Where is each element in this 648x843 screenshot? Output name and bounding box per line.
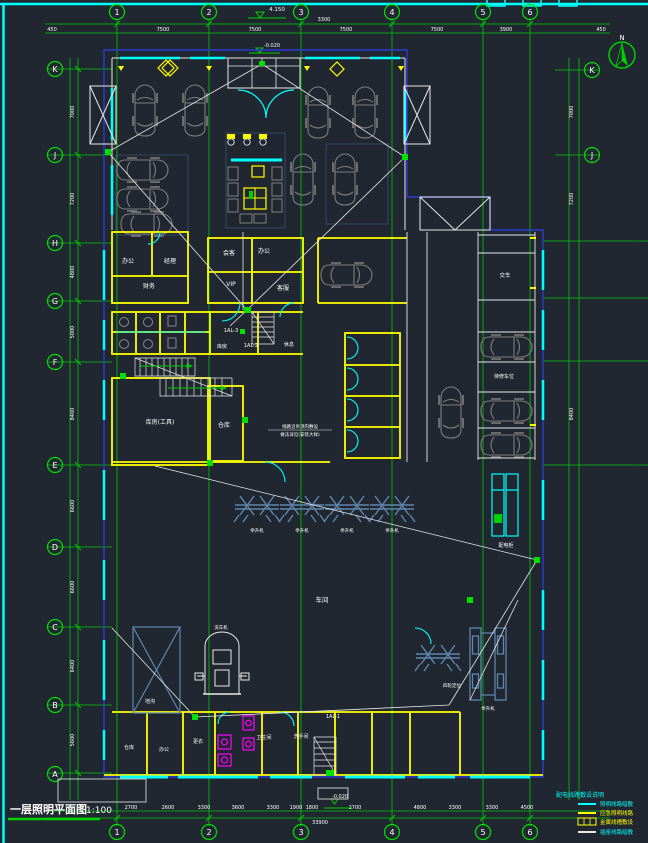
svg-text:7500: 7500 [249,27,262,33]
svg-text:4.150: 4.150 [269,7,285,13]
svg-text:4: 4 [389,828,394,837]
svg-text:1800: 1800 [306,805,319,811]
power-cabinets [492,474,518,536]
svg-text:经理: 经理 [164,257,176,265]
legend-title: 配电线路敷设说明 [556,791,604,799]
svg-text:1AL-3: 1AL-3 [224,328,238,334]
svg-text:1AL-1: 1AL-1 [326,714,340,720]
svg-text:地沟: 地沟 [145,698,155,705]
svg-text:6600: 6600 [70,500,76,513]
svg-text:5: 5 [480,828,485,837]
car-icon [183,85,207,136]
svg-text:A: A [52,770,58,779]
car-icon [117,158,168,182]
svg-text:5000: 5000 [70,326,76,339]
svg-text:1: 1 [114,8,119,17]
car-icon [481,433,532,457]
svg-text:交车: 交车 [499,271,511,279]
floor-plan-drawing: 1 2 3 4 5 6 1 2 3 4 5 6 K J H G F E D C … [0,0,648,843]
svg-text:做法详见(安装大样): 做法详见(安装大样) [280,431,320,438]
svg-text:库房(工具): 库房(工具) [146,418,175,426]
svg-text:K: K [52,65,58,74]
svg-text:8400: 8400 [569,408,575,421]
reception-desk [228,58,300,118]
toilet-fixtures-left [116,316,206,349]
svg-text:四轮定位: 四轮定位 [443,682,461,689]
svg-text:B: B [52,701,58,710]
svg-text:2700: 2700 [125,805,138,811]
svg-text:E: E [52,461,57,470]
svg-text:7000: 7000 [70,106,76,119]
svg-text:插座线路暗敷: 插座线路暗敷 [600,828,634,836]
svg-text:4800: 4800 [70,266,76,279]
swing-doors [148,232,431,726]
svg-text:2600: 2600 [162,805,175,811]
svg-text:金属线槽敷设: 金属线槽敷设 [600,818,634,826]
svg-text:33900: 33900 [312,820,328,826]
svg-text:6: 6 [527,8,532,17]
svg-text:-0.020: -0.020 [264,43,280,49]
north-label: N [619,34,624,42]
svg-text:卫生间: 卫生间 [256,734,271,741]
interior-walls [112,232,460,775]
car-icon [321,263,372,287]
level-marks: 4.150 -0.020 -0.020 [248,7,352,808]
svg-text:库房: 库房 [217,343,227,350]
svg-text:3300: 3300 [318,17,331,23]
workshop-equipment [133,474,518,713]
svg-text:客服: 客服 [277,284,289,292]
room-labels: 办公 经理 财务 会客 办公 VIP 客服 库房 休息 库房(工具) 仓库 交车… [122,247,514,753]
svg-text:7000: 7000 [569,106,575,119]
drawing-title: 一层照明平面图 [10,803,87,816]
svg-text:办公: 办公 [122,257,134,265]
svg-text:H: H [52,239,58,248]
svg-text:3300: 3300 [449,805,462,811]
svg-text:VIP: VIP [226,281,236,288]
svg-text:7500: 7500 [431,27,444,33]
cars [117,85,532,457]
svg-text:K: K [589,66,595,75]
svg-text:J: J [53,151,56,160]
svg-text:C: C [52,623,58,632]
svg-text:会客: 会客 [223,249,235,257]
svg-text:D: D [52,543,58,552]
svg-text:3: 3 [298,8,303,17]
svg-text:3300: 3300 [198,805,211,811]
svg-text:3: 3 [298,828,303,837]
svg-text:洗手间: 洗手间 [293,733,308,740]
svg-text:5: 5 [480,8,485,17]
svg-text:待修车位: 待修车位 [494,373,514,380]
wheel-alignment-lift-icon [415,645,461,671]
svg-text:7200: 7200 [569,193,575,206]
svg-text:7200: 7200 [70,193,76,206]
svg-text:线路沿吊顶内敷设: 线路沿吊顶内敷设 [282,423,318,430]
svg-text:车间: 车间 [316,595,329,604]
lounge-furniture [116,133,388,235]
legend: 配电线路敷设说明 照明线路暗敷 应急照明线路 金属线槽敷设 插座线路暗敷 [556,791,634,836]
svg-text:应急照明线路: 应急照明线路 [600,809,634,817]
svg-text:洗车机: 洗车机 [214,624,228,631]
svg-text:休息: 休息 [284,341,294,348]
svg-text:财务: 财务 [143,282,155,290]
north-arrow: N [609,34,635,68]
svg-text:450: 450 [47,27,57,33]
car-icon [439,387,463,438]
svg-text:3600: 3600 [232,805,245,811]
inspection-pit [133,627,180,713]
svg-text:2: 2 [206,8,211,17]
svg-text:仓库: 仓库 [124,744,134,751]
svg-text:4500: 4500 [521,805,534,811]
svg-text:3300: 3300 [486,805,499,811]
title-block: 一层照明平面图 1:100 [8,803,112,819]
svg-text:办公: 办公 [258,247,270,255]
svg-text:6400: 6400 [70,660,76,673]
svg-text:8400: 8400 [70,408,76,421]
svg-text:办公: 办公 [159,746,169,753]
scissor-lift-icon [234,496,280,522]
car-icon [481,399,532,423]
grid-lines [45,19,648,826]
svg-text:6: 6 [527,828,532,837]
svg-text:照明线路暗敷: 照明线路暗敷 [600,800,634,808]
svg-text:4800: 4800 [414,805,427,811]
svg-text:1AL-2: 1AL-2 [244,343,258,349]
svg-text:1900: 1900 [290,805,303,811]
car-icon [291,154,315,205]
svg-text:1: 1 [114,828,119,837]
svg-text:更衣: 更衣 [193,738,203,745]
svg-text:举升机: 举升机 [250,527,264,534]
svg-text:450: 450 [596,27,606,33]
cad-sheet: 1 2 3 4 5 6 1 2 3 4 5 6 K J H G F E D C … [0,0,648,843]
car-icon [133,85,157,136]
svg-text:F: F [53,358,58,367]
svg-text:配电柜: 配电柜 [498,542,513,549]
svg-text:5600: 5600 [70,734,76,747]
svg-text:3300: 3300 [267,805,280,811]
svg-text:举升机: 举升机 [295,527,309,534]
svg-text:6600: 6600 [70,581,76,594]
svg-text:2: 2 [206,828,211,837]
svg-text:G: G [52,297,58,306]
stairs [135,312,336,775]
svg-text:举升机: 举升机 [385,527,399,534]
svg-text:仓库: 仓库 [218,421,230,429]
wiring-lines [108,58,537,717]
drawing-scale: 1:100 [86,806,112,816]
car-icon [353,87,377,138]
car-icon [481,335,532,359]
svg-text:举升机: 举升机 [481,705,495,712]
svg-text:4: 4 [389,8,394,17]
svg-text:J: J [590,151,593,160]
svg-text:3900: 3900 [500,27,513,33]
svg-text:7500: 7500 [157,27,170,33]
svg-text:举升机: 举升机 [340,527,354,534]
grid-bubbles [48,5,600,840]
svg-text:7500: 7500 [340,27,353,33]
scissor-lift-icon [279,496,325,522]
car-wash-machine [195,632,249,694]
car-icon [333,154,357,205]
car-icon [117,187,168,211]
building-outline [104,50,543,777]
toilet-fixtures-bottom [218,716,254,766]
